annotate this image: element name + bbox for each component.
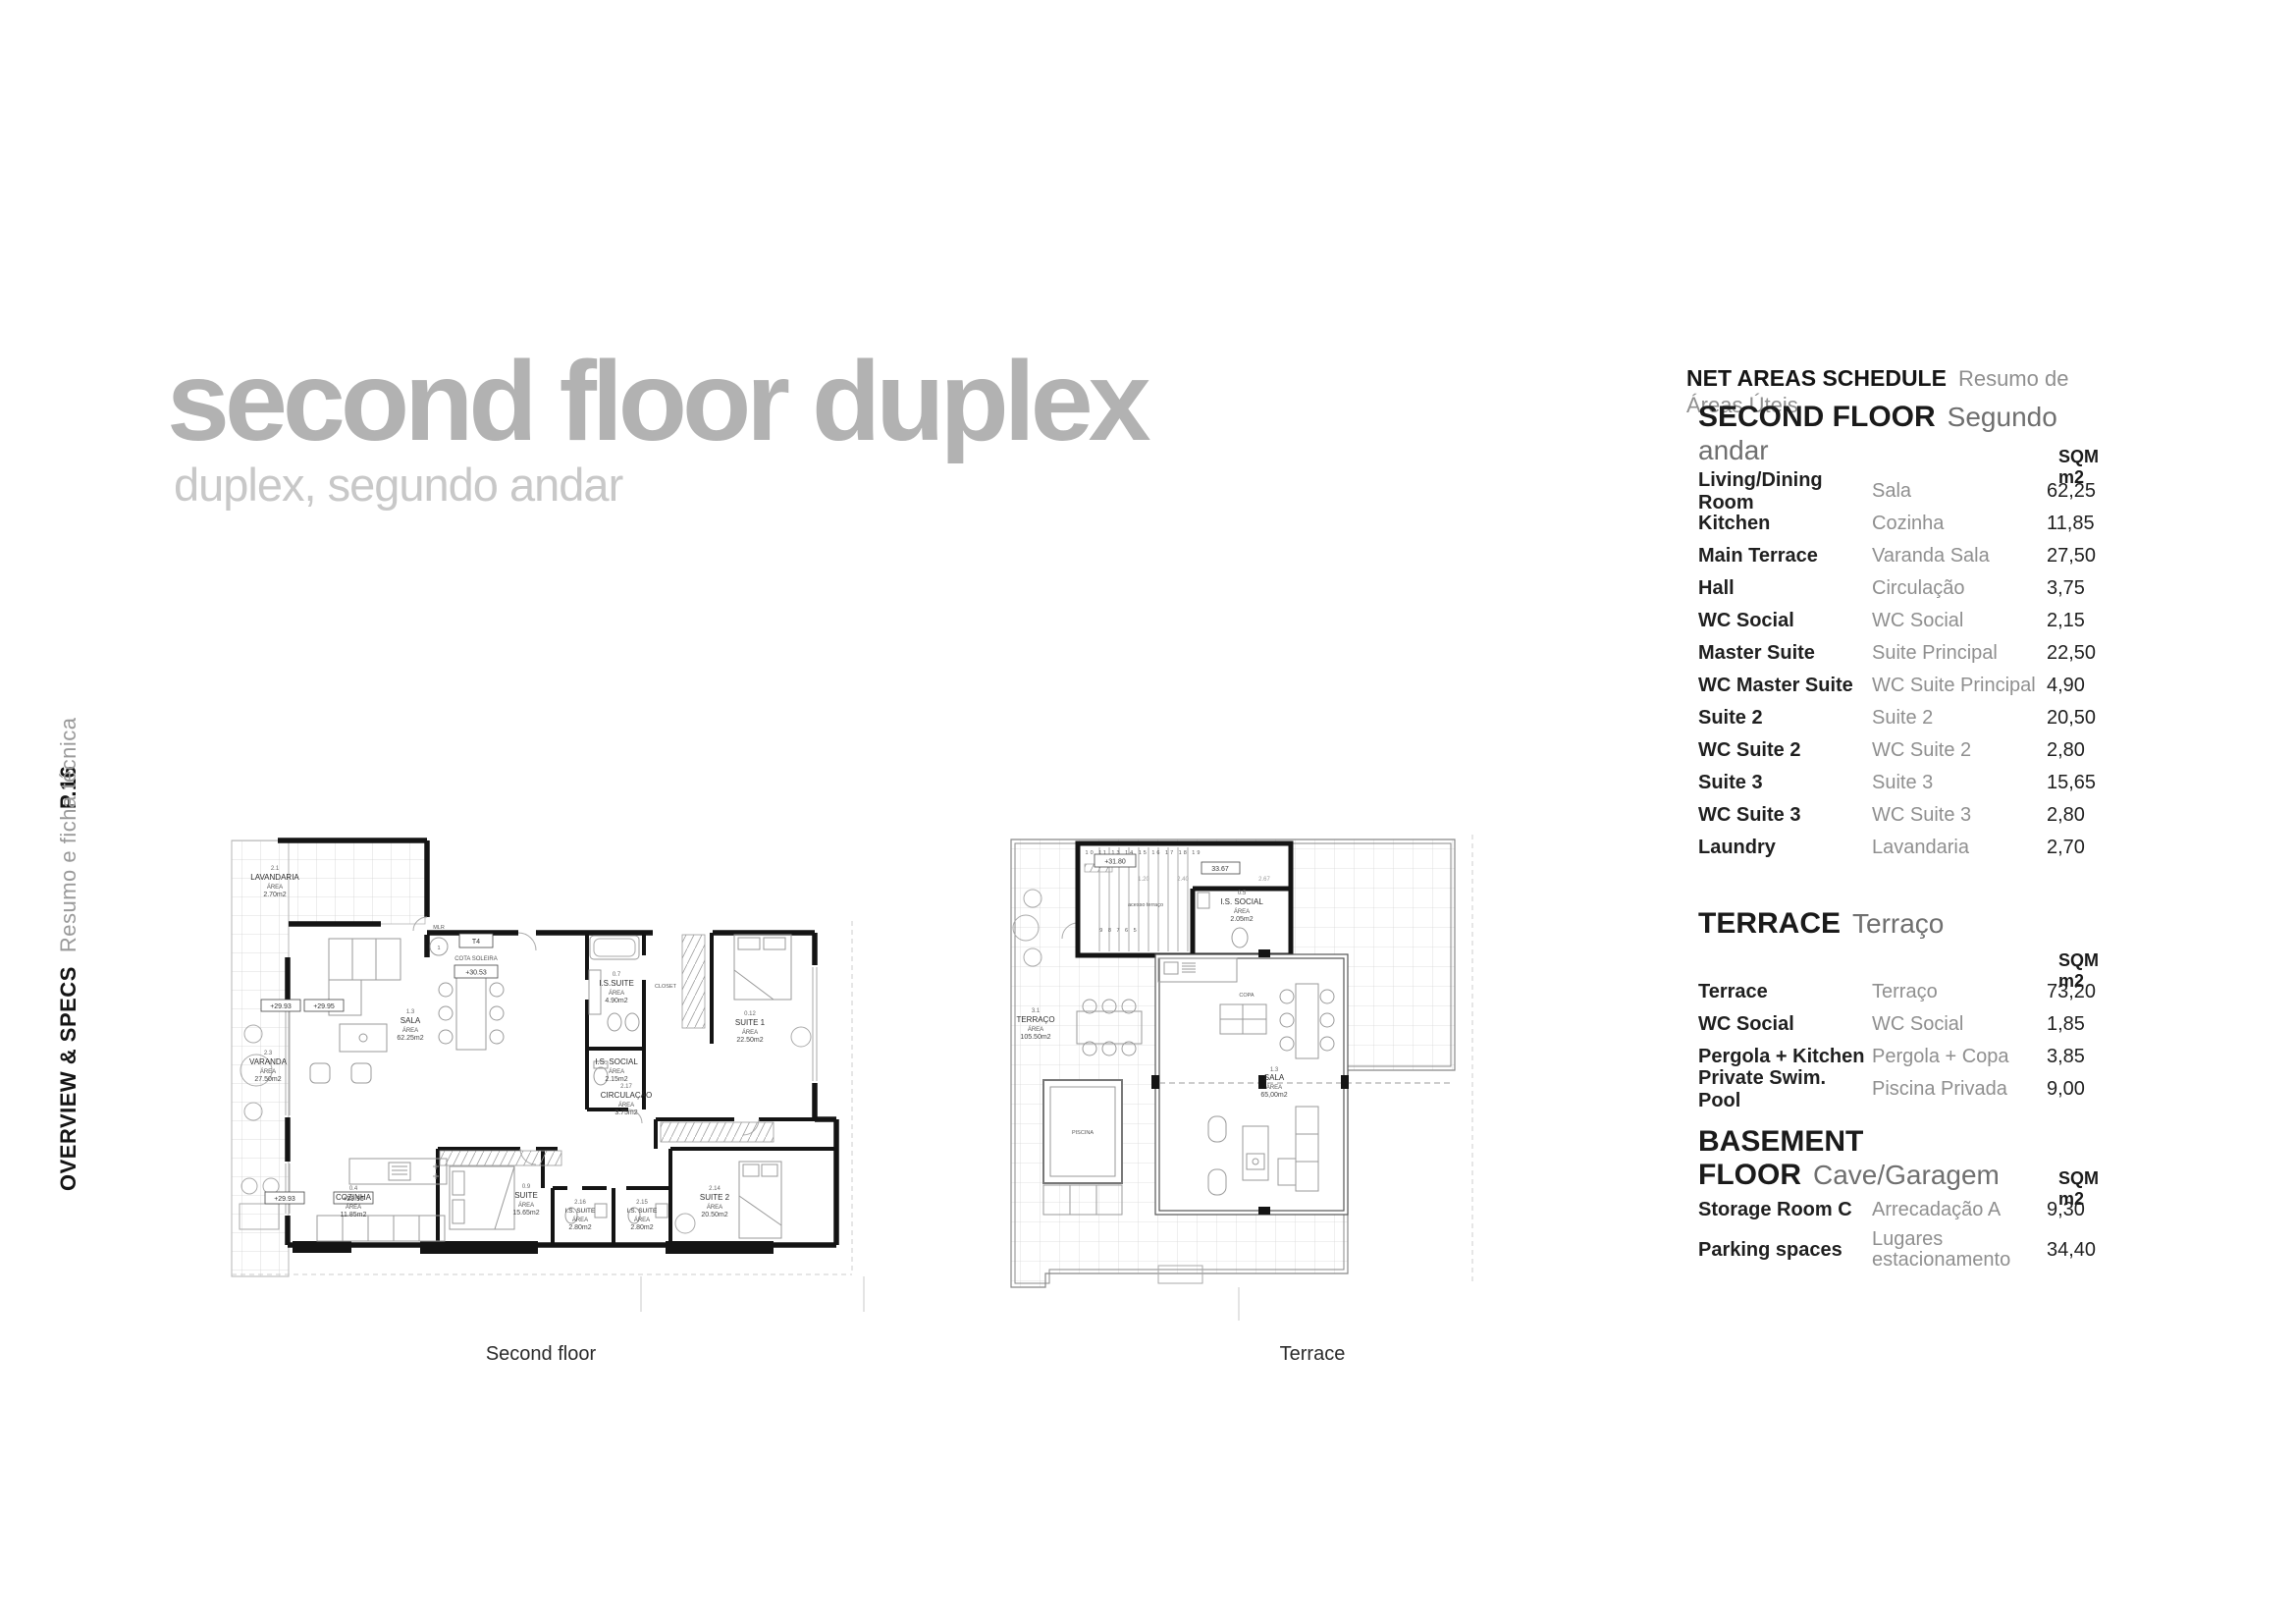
svg-text:2.16: 2.16 bbox=[574, 1200, 586, 1206]
row-value: 3,85 bbox=[2047, 1046, 2085, 1068]
room-label-is-suite-2: 2.16 I.S. SUITE ÁREA 2.80m2 bbox=[565, 1200, 596, 1231]
svg-text:ÁREA: ÁREA bbox=[1028, 1026, 1043, 1033]
mlr-label: MLR bbox=[433, 925, 445, 931]
row-label-pt: WC Suite Principal bbox=[1872, 676, 2047, 696]
table-row: WC Master SuiteWC Suite Principal4,90 bbox=[1698, 670, 2128, 702]
svg-text:VARANDA: VARANDA bbox=[249, 1057, 288, 1066]
svg-text:I.S. SUITE: I.S. SUITE bbox=[627, 1208, 658, 1215]
table-row: WC SocialWC Social1,85 bbox=[1698, 1008, 2128, 1041]
svg-text:I.S. SOCIAL: I.S. SOCIAL bbox=[595, 1057, 638, 1066]
suite-furniture bbox=[440, 1151, 561, 1229]
svg-text:CIRCULAÇÃO: CIRCULAÇÃO bbox=[601, 1091, 652, 1100]
svg-text:ÁREA: ÁREA bbox=[402, 1027, 418, 1034]
section-subtitle-text: Terraço bbox=[1852, 908, 1944, 939]
svg-text:2.80m2: 2.80m2 bbox=[630, 1224, 653, 1231]
room-label-suite: 0.9 SUITE ÁREA 15.65m2 bbox=[512, 1184, 539, 1217]
svg-text:2.05m2: 2.05m2 bbox=[1230, 916, 1253, 923]
svg-text:ÁREA: ÁREA bbox=[618, 1102, 634, 1109]
row-value: 22,50 bbox=[2047, 642, 2096, 665]
row-label-pt: WC Suite 2 bbox=[1872, 740, 2047, 761]
brochure-page: P.16 OVERVIEW & SPECSResumo e ficha técn… bbox=[0, 0, 2296, 1624]
svg-text:22.50m2: 22.50m2 bbox=[736, 1037, 763, 1044]
type-label: T4 bbox=[472, 939, 480, 946]
svg-text:0.7: 0.7 bbox=[613, 972, 621, 978]
row-value: 3,75 bbox=[2047, 577, 2085, 600]
row-label-en: Kitchen bbox=[1698, 513, 1872, 535]
svg-text:ÁREA: ÁREA bbox=[518, 1202, 534, 1209]
table-row: Storage Room CArrecadação A9,30 bbox=[1698, 1194, 2128, 1226]
svg-text:2.15: 2.15 bbox=[636, 1200, 648, 1206]
svg-text:ÁREA: ÁREA bbox=[572, 1217, 588, 1223]
schedule-title: NET AREAS SCHEDULE bbox=[1686, 365, 1947, 391]
row-label-pt: Suite 2 bbox=[1872, 708, 2047, 729]
row-value: 2,80 bbox=[2047, 739, 2085, 762]
window-lines bbox=[286, 967, 817, 1214]
svg-text:2.3: 2.3 bbox=[264, 1051, 273, 1056]
svg-text:COZINHA: COZINHA bbox=[336, 1193, 372, 1202]
svg-text:0.5: 0.5 bbox=[1238, 891, 1247, 896]
row-label-pt: Circulação bbox=[1872, 578, 2047, 599]
svg-text:SALA: SALA bbox=[400, 1016, 421, 1025]
svg-text:I.S. SOCIAL: I.S. SOCIAL bbox=[1220, 897, 1263, 906]
row-value: 20,50 bbox=[2047, 707, 2096, 730]
row-label-en: Pergola + Kitchen bbox=[1698, 1046, 1872, 1068]
room-label-sala: 1.3 SALA ÁREA 62.25m2 bbox=[397, 1009, 423, 1042]
section-subtitle-text: Cave/Garagem bbox=[1813, 1160, 2000, 1190]
svg-text:TERRAÇO: TERRAÇO bbox=[1016, 1015, 1054, 1024]
svg-text:4.90m2: 4.90m2 bbox=[605, 998, 627, 1004]
page-subtitle: duplex, segundo andar bbox=[174, 461, 622, 508]
row-label-en: Main Terrace bbox=[1698, 545, 1872, 568]
table-row: WC SocialWC Social2,15 bbox=[1698, 605, 2128, 637]
level-label: +29.93 bbox=[270, 1003, 292, 1010]
row-label-pt: WC Suite 3 bbox=[1872, 805, 2047, 826]
row-label-en: Master Suite bbox=[1698, 642, 1872, 665]
svg-text:27.50m2: 27.50m2 bbox=[254, 1076, 281, 1083]
row-label-pt: Suite 3 bbox=[1872, 773, 2047, 793]
interior-walls bbox=[438, 933, 836, 1245]
table-row: Suite 2Suite 220,50 bbox=[1698, 702, 2128, 734]
svg-text:ÁREA: ÁREA bbox=[742, 1029, 758, 1036]
floorplan-terrace: 10 11 13 14 15 16 17 18 19 9 8 7 6 5 +31… bbox=[1001, 830, 1610, 1321]
plan-caption-terrace: Terrace bbox=[1214, 1343, 1411, 1366]
table-row: KitchenCozinha11,85 bbox=[1698, 508, 2128, 540]
section-title-text: TERRACE bbox=[1698, 907, 1841, 940]
svg-text:0.9: 0.9 bbox=[522, 1184, 531, 1190]
svg-text:I.S.SUITE: I.S.SUITE bbox=[599, 979, 634, 988]
wall-pillar bbox=[666, 1241, 774, 1254]
table-row: HallCirculação3,75 bbox=[1698, 572, 2128, 605]
row-label-en: Laundry bbox=[1698, 837, 1872, 859]
row-label-en: WC Social bbox=[1698, 610, 1872, 632]
row-value: 9,00 bbox=[2047, 1078, 2085, 1101]
row-label-pt: Lugares estacionamento bbox=[1872, 1229, 2047, 1271]
sidebar-section: OVERVIEW & SPECSResumo e ficha técnica bbox=[56, 717, 81, 1191]
row-label-en: WC Social bbox=[1698, 1013, 1872, 1036]
plan-boundary-dashed bbox=[232, 921, 852, 1274]
dim-b: 2.40 bbox=[1177, 877, 1189, 883]
row-label-en: Parking spaces bbox=[1698, 1239, 1872, 1262]
svg-text:2.70m2: 2.70m2 bbox=[263, 892, 286, 898]
dim-boxed: 33.67 bbox=[1211, 866, 1229, 873]
row-value: 27,50 bbox=[2047, 545, 2096, 568]
room-label-is-suite-3: 2.15 I.S. SUITE ÁREA 2.80m2 bbox=[627, 1200, 658, 1231]
svg-text:I.S. SUITE: I.S. SUITE bbox=[565, 1208, 596, 1215]
row-value: 34,40 bbox=[2047, 1239, 2096, 1262]
row-label-pt: WC Social bbox=[1872, 1014, 2047, 1035]
wall-pillar bbox=[293, 1241, 351, 1253]
room-label-suite2: 2.14 SUITE 2 ÁREA 20.50m2 bbox=[700, 1186, 730, 1218]
svg-text:ÁREA: ÁREA bbox=[609, 990, 624, 997]
table-row: Private Swim. PoolPiscina Privada9,00 bbox=[1698, 1073, 2128, 1106]
table-row: LaundryLavandaria2,70 bbox=[1698, 832, 2128, 864]
table-row: WC Suite 2WC Suite 22,80 bbox=[1698, 734, 2128, 767]
cota-value: +30.53 bbox=[465, 970, 487, 977]
svg-text:1.3: 1.3 bbox=[406, 1009, 415, 1015]
room-label-is-social: I.S. SOCIAL ÁREA 2.15m2 bbox=[595, 1057, 638, 1083]
row-label-en: Hall bbox=[1698, 577, 1872, 600]
svg-text:2.1: 2.1 bbox=[271, 866, 280, 872]
svg-text:SUITE 1: SUITE 1 bbox=[735, 1018, 766, 1027]
row-label-pt: Cozinha bbox=[1872, 514, 2047, 534]
svg-text:LAVANDARIA: LAVANDARIA bbox=[250, 873, 299, 882]
svg-text:ÁREA: ÁREA bbox=[260, 1068, 276, 1075]
svg-text:0.4: 0.4 bbox=[349, 1186, 358, 1192]
room-label-suite1: 0.12 SUITE 1 ÁREA 22.50m2 bbox=[735, 1011, 766, 1044]
sidebar-section-title: OVERVIEW & SPECS bbox=[56, 966, 80, 1191]
table-row: TerraceTerraço73,20 bbox=[1698, 976, 2128, 1008]
basement-rows: Storage Room CArrecadação A9,30 Parking … bbox=[1698, 1194, 2128, 1273]
row-label-en: Living/Dining Room bbox=[1698, 469, 1872, 514]
svg-text:2.14: 2.14 bbox=[709, 1186, 721, 1192]
room-label-is-suite: 0.7 I.S.SUITE ÁREA 4.90m2 bbox=[599, 972, 634, 1004]
row-value: 1,85 bbox=[2047, 1013, 2085, 1036]
svg-text:ÁREA: ÁREA bbox=[346, 1204, 361, 1211]
level-label: +29.95 bbox=[313, 1003, 335, 1010]
section-title-text: SECOND FLOOR bbox=[1698, 401, 1936, 433]
table-row: Living/Dining RoomSala62,25 bbox=[1698, 475, 2128, 508]
sidebar-section-subtitle: Resumo e ficha técnica bbox=[56, 717, 80, 952]
row-value: 73,20 bbox=[2047, 981, 2096, 1003]
page-title: second floor duplex bbox=[167, 346, 1147, 459]
svg-text:ÁREA: ÁREA bbox=[609, 1068, 624, 1075]
row-label-pt: Terraço bbox=[1872, 982, 2047, 1002]
svg-text:15.65m2: 15.65m2 bbox=[512, 1210, 539, 1217]
row-label-en: Suite 3 bbox=[1698, 772, 1872, 794]
svg-text:ÁREA: ÁREA bbox=[707, 1204, 722, 1211]
svg-text:2.15m2: 2.15m2 bbox=[605, 1076, 627, 1083]
svg-text:2.17: 2.17 bbox=[620, 1084, 632, 1090]
row-value: 2,80 bbox=[2047, 804, 2085, 827]
table-row: Suite 3Suite 315,65 bbox=[1698, 767, 2128, 799]
svg-text:ÁREA: ÁREA bbox=[1234, 908, 1250, 915]
row-value: 2,15 bbox=[2047, 610, 2085, 632]
row-label-pt: Lavandaria bbox=[1872, 838, 2047, 858]
wall-pillar bbox=[420, 1241, 538, 1254]
row-label-en: Storage Room C bbox=[1698, 1199, 1872, 1221]
svg-text:0.12: 0.12 bbox=[744, 1011, 756, 1017]
floorplan-second-floor: 1 MLR bbox=[224, 823, 872, 1314]
svg-text:ÁREA: ÁREA bbox=[634, 1217, 650, 1223]
stair-numbers-bottom: 9 8 7 6 5 bbox=[1099, 928, 1138, 934]
table-row: Parking spacesLugares estacionamento34,4… bbox=[1698, 1226, 2128, 1273]
svg-text:2.80m2: 2.80m2 bbox=[568, 1224, 591, 1231]
dim-c: 2.67 bbox=[1258, 877, 1270, 883]
row-label-en: Suite 2 bbox=[1698, 707, 1872, 730]
room-label-piscina: PISCINA bbox=[1072, 1130, 1094, 1136]
svg-text:ÁREA: ÁREA bbox=[267, 884, 283, 891]
svg-text:SUITE 2: SUITE 2 bbox=[700, 1193, 730, 1202]
second-floor-rows: Living/Dining RoomSala62,25 KitchenCozin… bbox=[1698, 475, 2128, 864]
cota-label: COTA SOLEIRA bbox=[454, 956, 498, 962]
laundry-tiles bbox=[289, 840, 425, 924]
row-label-en: WC Master Suite bbox=[1698, 675, 1872, 697]
room-label-closet: CLOSET bbox=[655, 984, 677, 990]
row-label-pt: Pergola + Copa bbox=[1872, 1047, 2047, 1067]
row-value: 62,25 bbox=[2047, 480, 2096, 503]
svg-text:SUITE: SUITE bbox=[514, 1191, 538, 1200]
section-lines bbox=[641, 1276, 864, 1312]
level-label: +29.93 bbox=[274, 1196, 295, 1203]
svg-text:105.50m2: 105.50m2 bbox=[1020, 1034, 1050, 1041]
terrace-rows: TerraceTerraço73,20 WC SocialWC Social1,… bbox=[1698, 976, 2128, 1106]
row-value: 4,90 bbox=[2047, 675, 2085, 697]
room-label-copa: COPA bbox=[1239, 993, 1255, 999]
svg-text:3.75m2: 3.75m2 bbox=[614, 1110, 637, 1116]
row-value: 15,65 bbox=[2047, 772, 2096, 794]
svg-text:ÁREA: ÁREA bbox=[1266, 1084, 1282, 1091]
dim-a: 1.20 bbox=[1138, 877, 1149, 883]
svg-text:11.85m2: 11.85m2 bbox=[341, 1212, 367, 1218]
section-title-terrace: TERRACETerraço bbox=[1698, 907, 1944, 941]
row-value: 9,30 bbox=[2047, 1199, 2085, 1221]
svg-text:SALA: SALA bbox=[1264, 1073, 1285, 1082]
row-label-en: Terrace bbox=[1698, 981, 1872, 1003]
row-value: 11,85 bbox=[2047, 513, 2095, 535]
svg-text:3.1: 3.1 bbox=[1032, 1008, 1041, 1014]
row-label-pt: Suite Principal bbox=[1872, 643, 2047, 664]
row-label-pt: Varanda Sala bbox=[1872, 546, 2047, 567]
row-label-en: WC Suite 3 bbox=[1698, 804, 1872, 827]
row-label-pt: Piscina Privada bbox=[1872, 1079, 2047, 1100]
row-label-en: Private Swim. Pool bbox=[1698, 1067, 1872, 1112]
access-label: acesso terraço bbox=[1128, 902, 1163, 908]
stair-ref-label: 1 bbox=[437, 946, 440, 951]
table-row: Main TerraceVaranda Sala27,50 bbox=[1698, 540, 2128, 572]
row-label-pt: Arrecadação A bbox=[1872, 1200, 2047, 1220]
row-value: 2,70 bbox=[2047, 837, 2085, 859]
row-label-pt: WC Social bbox=[1872, 611, 2047, 631]
level-label: +31.80 bbox=[1104, 859, 1126, 866]
table-row: WC Suite 3WC Suite 32,80 bbox=[1698, 799, 2128, 832]
svg-text:20.50m2: 20.50m2 bbox=[701, 1212, 727, 1218]
row-label-en: WC Suite 2 bbox=[1698, 739, 1872, 762]
svg-text:65,00m2: 65,00m2 bbox=[1260, 1092, 1287, 1099]
plan-caption-second-floor: Second floor bbox=[443, 1343, 639, 1366]
table-row: Master SuiteSuite Principal22,50 bbox=[1698, 637, 2128, 670]
svg-text:62.25m2: 62.25m2 bbox=[397, 1035, 423, 1042]
row-label-pt: Sala bbox=[1872, 481, 2047, 502]
